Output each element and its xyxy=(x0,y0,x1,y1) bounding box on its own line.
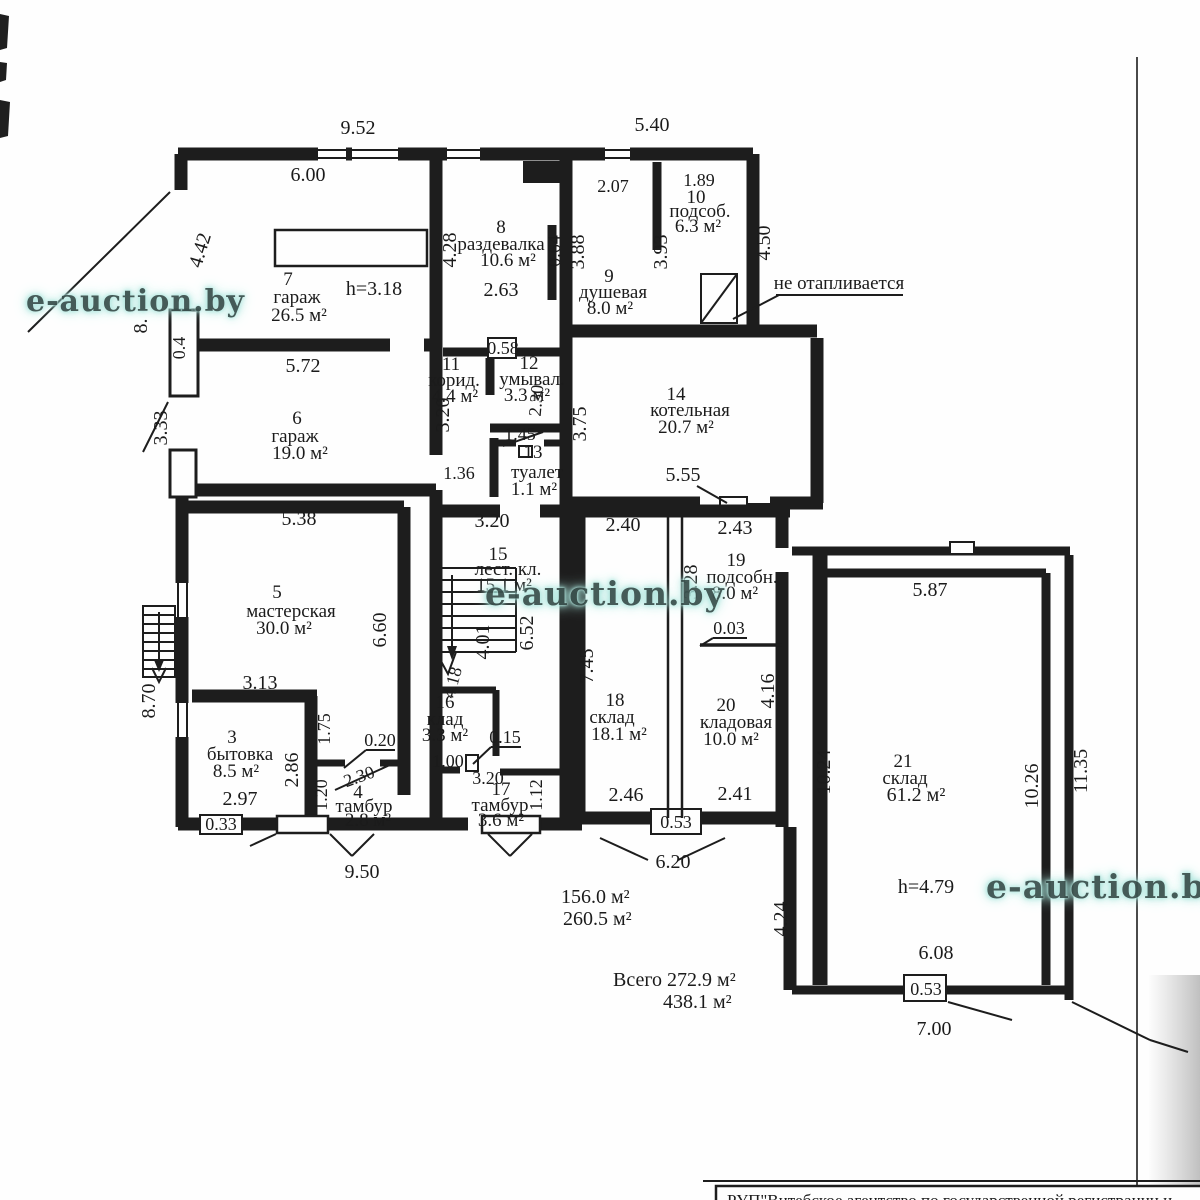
dim: 7.45 xyxy=(576,649,598,684)
watermark: e-auction.by xyxy=(485,574,725,613)
room-21-area: 61.2 м² xyxy=(887,784,946,806)
inspection-pit xyxy=(275,230,427,266)
room-11-area: 4.4 м² xyxy=(432,386,479,407)
room-14-area: 20.7 м² xyxy=(658,417,714,438)
room-7-area: 26.5 м² xyxy=(271,305,327,326)
scanned-floor-plan-page: 9.52 5.40 6.00 4.42 8. 0.4 2.07 1.89 4.2… xyxy=(0,0,1200,1200)
room-3-area: 8.5 м² xyxy=(213,761,260,782)
total-area-2: 438.1 м² xyxy=(663,991,732,1013)
dim: 1.12 xyxy=(526,779,546,811)
dim: 0.15 xyxy=(489,727,521,747)
dim: 9.50 xyxy=(345,861,380,883)
dim: 6.60 xyxy=(369,613,391,648)
room-13-area: 1.1 м² xyxy=(511,479,558,500)
unheated-note: не отапливается xyxy=(774,273,905,294)
dim: 5.87 xyxy=(913,579,948,601)
room-10-area: 6.3 м² xyxy=(675,216,722,237)
dim: 4.16 xyxy=(757,674,779,709)
dim: 1.75 xyxy=(314,713,334,745)
room-4-area: 2.8 м² xyxy=(345,810,392,831)
dim: 2.46 xyxy=(609,784,644,806)
dim: 8.70 xyxy=(138,684,160,719)
ceiling-height-label: h=3.18 xyxy=(346,278,402,300)
dim: 2.63 xyxy=(484,279,519,301)
dim: 2.86 xyxy=(281,753,303,788)
dim: 3.93 xyxy=(650,235,672,270)
dim: 6.20 xyxy=(656,851,691,873)
dim: 11.35 xyxy=(1070,749,1092,793)
dim: 0.20 xyxy=(364,730,396,750)
room-6-area: 19.0 м² xyxy=(272,443,328,464)
dim: 10.26 xyxy=(1021,764,1043,809)
dim: 2.97 xyxy=(223,788,258,810)
room-9-area: 8.0 м² xyxy=(587,298,634,319)
room-20-area: 10.0 м² xyxy=(703,729,759,750)
shaft-wall xyxy=(668,517,682,818)
room-13-number: 13 xyxy=(524,442,543,463)
dim: 5.55 xyxy=(666,464,701,486)
dim: 4.24 xyxy=(770,902,792,937)
dim: 3.88 xyxy=(567,235,589,270)
dim: 2.40 xyxy=(606,514,641,536)
dim: 3.13 xyxy=(243,672,278,694)
dim: 9.52 xyxy=(341,117,376,139)
subtotal-area-1: 156.0 м² xyxy=(561,886,630,908)
dim: 3.20 xyxy=(475,510,510,532)
dim: 6.52 xyxy=(516,616,538,651)
wall-pier xyxy=(523,161,570,183)
dim: 8. xyxy=(130,319,152,334)
dim: 0.03 xyxy=(713,618,745,638)
dim: 0.53 xyxy=(660,812,692,832)
dim: 1.36 xyxy=(443,463,475,483)
ceiling-height-label: h=4.79 xyxy=(898,876,954,898)
dim: 0.53 xyxy=(910,979,942,999)
dim: 1.00 xyxy=(432,751,464,771)
total-area-1: Всего 272.9 м² xyxy=(613,969,736,991)
dim: 2.41 xyxy=(718,783,753,805)
dim: 4.01 xyxy=(472,625,494,660)
room-5-area: 30.0 м² xyxy=(256,618,312,639)
dim: 6.08 xyxy=(919,942,954,964)
room-16-area: 3.3 м² xyxy=(422,725,469,746)
dim: 7.00 xyxy=(917,1018,952,1040)
dim: 10.24 xyxy=(813,750,835,795)
dim: 0.58 xyxy=(487,338,519,358)
room-17-area: 3.6 м² xyxy=(478,810,525,831)
dim: 5.40 xyxy=(635,114,670,136)
dim: 3.75 xyxy=(569,407,591,442)
dim: 0.4 xyxy=(169,337,189,360)
dim: 3.33 xyxy=(150,411,172,446)
stair-arrows xyxy=(154,646,457,672)
room-5-number: 5 xyxy=(272,582,282,603)
dim: 1.20 xyxy=(311,779,331,811)
agency-stamp-text: РУП"Витебское агентство по государственн… xyxy=(727,1191,1172,1200)
room-18-area: 18.1 м² xyxy=(591,724,647,745)
subtotal-area-2: 260.5 м² xyxy=(563,908,632,930)
dim: 0.64 xyxy=(544,235,564,267)
room-12-area: 3.3 м² xyxy=(504,385,551,406)
dim: 4.42 xyxy=(185,230,216,270)
watermark: e-auction.by xyxy=(986,867,1200,906)
watermark: e-auction.by xyxy=(26,284,245,319)
dim: 1.45 xyxy=(504,424,536,444)
dim: 4.50 xyxy=(753,226,775,261)
dim: 2.43 xyxy=(718,517,753,539)
dim: 0.33 xyxy=(205,814,237,834)
room-8-area: 10.6 м² xyxy=(480,250,536,271)
dim: 5.72 xyxy=(286,355,321,377)
wall-pier-outline xyxy=(170,450,196,497)
dim: 6.00 xyxy=(291,164,326,186)
dim: 2.07 xyxy=(597,176,629,196)
dim: 5.38 xyxy=(282,508,317,530)
scan-smudge xyxy=(1148,975,1200,1200)
